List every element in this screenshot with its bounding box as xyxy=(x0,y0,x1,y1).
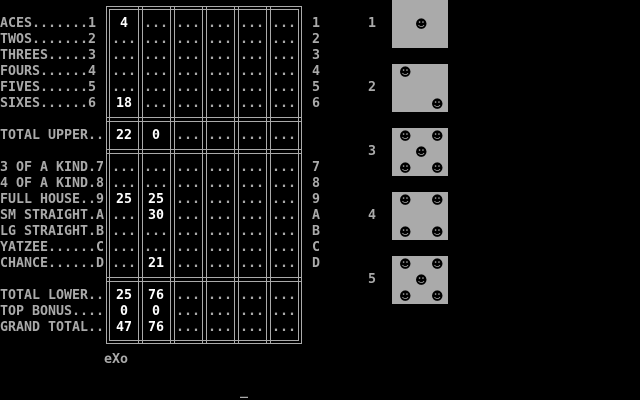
score-row-full-house: FULL HOUSE..92525............9 xyxy=(0,192,640,208)
score-cell-chance-game5: ... xyxy=(240,256,264,272)
score-cell-aces-game3: ... xyxy=(176,16,200,32)
score-cell-sixes-game1: 18 xyxy=(112,96,136,112)
score-cell-aces-game6: ... xyxy=(272,16,296,32)
score-row-key: 9 xyxy=(312,192,320,208)
score-cell-sm-straight-game2: 30 xyxy=(144,208,168,224)
score-row-key: 2 xyxy=(312,32,320,48)
score-cell-full-house-game6: ... xyxy=(272,192,296,208)
score-cell-threes-game5: ... xyxy=(240,48,264,64)
score-cell-threes-game4: ... xyxy=(208,48,232,64)
score-cell-aces-game5: ... xyxy=(240,16,264,32)
score-row-twos: TWOS.......2..................2 xyxy=(0,32,640,48)
score-cell-four-of-a-kind-game6: ... xyxy=(272,176,296,192)
die-pip-icon: ☻ xyxy=(415,144,425,160)
score-cell-total-upper-game1: 22 xyxy=(112,128,136,144)
score-cell-three-of-a-kind-game3: ... xyxy=(176,160,200,176)
score-row-label: GRAND TOTAL.. xyxy=(0,320,104,336)
score-row-key: A xyxy=(312,208,320,224)
die-2-face: ☻☻ xyxy=(392,64,448,112)
score-row-four-of-a-kind: 4 OF A KIND.8..................8 xyxy=(0,176,640,192)
score-cell-three-of-a-kind-game6: ... xyxy=(272,160,296,176)
score-cell-aces-game4: ... xyxy=(208,16,232,32)
score-row-label: YATZEE......C xyxy=(0,240,104,256)
score-cell-lg-straight-game4: ... xyxy=(208,224,232,240)
score-cell-lg-straight-game3: ... xyxy=(176,224,200,240)
score-cell-fives-game5: ... xyxy=(240,80,264,96)
table-gridline-h1 xyxy=(107,117,301,122)
die-pip-icon: ☻ xyxy=(399,64,409,80)
score-cell-top-bonus-game1: 0 xyxy=(112,304,136,320)
die-pip-icon: ☻ xyxy=(415,272,425,288)
score-cell-chance-game6: ... xyxy=(272,256,296,272)
die-label-2: 2 xyxy=(368,80,376,96)
score-row-fours: FOURS......4..................4 xyxy=(0,64,640,80)
score-row-aces: ACES.......14...............1 xyxy=(0,16,640,32)
score-cell-total-lower-game3: ... xyxy=(176,288,200,304)
score-row-label: FULL HOUSE..9 xyxy=(0,192,104,208)
score-row-key: B xyxy=(312,224,320,240)
score-row-threes: THREES.....3..................3 xyxy=(0,48,640,64)
score-row-key: 3 xyxy=(312,48,320,64)
score-row-sm-straight: SM STRAIGHT.A...30............A xyxy=(0,208,640,224)
score-cell-total-lower-game6: ... xyxy=(272,288,296,304)
score-cell-yatzee-game5: ... xyxy=(240,240,264,256)
score-row-key: 5 xyxy=(312,80,320,96)
score-cell-grand-total-game3: ... xyxy=(176,320,200,336)
score-cell-threes-game2: ... xyxy=(144,48,168,64)
table-gridline-h3 xyxy=(107,277,301,282)
score-cell-twos-game1: ... xyxy=(112,32,136,48)
score-cell-grand-total-game1: 47 xyxy=(112,320,136,336)
score-cell-sixes-game6: ... xyxy=(272,96,296,112)
score-cell-total-upper-game5: ... xyxy=(240,128,264,144)
score-cell-fours-game2: ... xyxy=(144,64,168,80)
score-cell-three-of-a-kind-game2: ... xyxy=(144,160,168,176)
score-cell-top-bonus-game4: ... xyxy=(208,304,232,320)
score-cell-full-house-game2: 25 xyxy=(144,192,168,208)
score-cell-lg-straight-game5: ... xyxy=(240,224,264,240)
die-pip-icon: ☻ xyxy=(399,256,409,272)
score-cell-yatzee-game3: ... xyxy=(176,240,200,256)
die-pip-icon: ☻ xyxy=(399,288,409,304)
score-cell-fives-game1: ... xyxy=(112,80,136,96)
score-cell-chance-game3: ... xyxy=(176,256,200,272)
table-gridline-h2 xyxy=(107,149,301,154)
score-cell-fours-game6: ... xyxy=(272,64,296,80)
score-cell-top-bonus-game6: ... xyxy=(272,304,296,320)
die-pip-icon: ☻ xyxy=(431,160,441,176)
score-row-label: ACES.......1 xyxy=(0,16,96,32)
score-cell-fives-game6: ... xyxy=(272,80,296,96)
score-cell-sixes-game5: ... xyxy=(240,96,264,112)
die-label-4: 4 xyxy=(368,208,376,224)
score-cell-fours-game4: ... xyxy=(208,64,232,80)
die-4-face: ☻☻☻☻ xyxy=(392,192,448,240)
die-pip-icon: ☻ xyxy=(431,288,441,304)
score-cell-grand-total-game4: ... xyxy=(208,320,232,336)
score-cell-three-of-a-kind-game4: ... xyxy=(208,160,232,176)
score-cell-top-bonus-game2: 0 xyxy=(144,304,168,320)
score-cell-three-of-a-kind-game5: ... xyxy=(240,160,264,176)
score-cell-four-of-a-kind-game4: ... xyxy=(208,176,232,192)
score-cell-top-bonus-game5: ... xyxy=(240,304,264,320)
score-cell-sixes-game3: ... xyxy=(176,96,200,112)
score-cell-fours-game5: ... xyxy=(240,64,264,80)
score-cell-lg-straight-game6: ... xyxy=(272,224,296,240)
score-cell-grand-total-game6: ... xyxy=(272,320,296,336)
score-row-key: 6 xyxy=(312,96,320,112)
score-cell-sm-straight-game6: ... xyxy=(272,208,296,224)
score-cell-fives-game3: ... xyxy=(176,80,200,96)
score-cell-threes-game6: ... xyxy=(272,48,296,64)
score-row-three-of-a-kind: 3 OF A KIND.7..................7 xyxy=(0,160,640,176)
score-row-label: FIVES......5 xyxy=(0,80,96,96)
score-row-label: TWOS.......2 xyxy=(0,32,96,48)
score-cell-full-house-game5: ... xyxy=(240,192,264,208)
die-1-face: ☻ xyxy=(392,0,448,48)
score-row-key: 1 xyxy=(312,16,320,32)
score-cell-fours-game3: ... xyxy=(176,64,200,80)
score-cell-lg-straight-game1: ... xyxy=(112,224,136,240)
score-cell-yatzee-game4: ... xyxy=(208,240,232,256)
score-row-fives: FIVES......5..................5 xyxy=(0,80,640,96)
prompt-input[interactable]: HOW MANY DICE TO ROLL AGAIN? _ xyxy=(8,384,264,400)
die-pip-icon: ☻ xyxy=(399,128,409,144)
score-cell-top-bonus-game3: ... xyxy=(176,304,200,320)
die-pip-icon: ☻ xyxy=(399,160,409,176)
score-cell-total-upper-game4: ... xyxy=(208,128,232,144)
die-label-1: 1 xyxy=(368,16,376,32)
score-row-label: 4 OF A KIND.8 xyxy=(0,176,104,192)
score-cell-total-upper-game6: ... xyxy=(272,128,296,144)
die-pip-icon: ☻ xyxy=(431,128,441,144)
score-cell-four-of-a-kind-game2: ... xyxy=(144,176,168,192)
score-cell-threes-game3: ... xyxy=(176,48,200,64)
score-cell-twos-game2: ... xyxy=(144,32,168,48)
score-row-label: TOP BONUS.... xyxy=(0,304,104,320)
score-cell-full-house-game1: 25 xyxy=(112,192,136,208)
die-pip-icon: ☻ xyxy=(415,16,425,32)
score-row-key: C xyxy=(312,240,320,256)
score-row-sixes: SIXES......618...............6 xyxy=(0,96,640,112)
score-cell-chance-game1: ... xyxy=(112,256,136,272)
die-pip-icon: ☻ xyxy=(399,192,409,208)
score-row-yatzee: YATZEE......C..................C xyxy=(0,240,640,256)
score-row-label: SIXES......6 xyxy=(0,96,96,112)
score-cell-threes-game1: ... xyxy=(112,48,136,64)
die-pip-icon: ☻ xyxy=(431,256,441,272)
score-cell-chance-game2: 21 xyxy=(144,256,168,272)
score-row-grand-total: GRAND TOTAL..4776............ xyxy=(0,320,640,336)
score-row-label: TOTAL UPPER.. xyxy=(0,128,104,144)
text-cursor: _ xyxy=(240,384,248,400)
die-pip-icon: ☻ xyxy=(431,96,441,112)
score-cell-twos-game6: ... xyxy=(272,32,296,48)
score-row-label: CHANCE......D xyxy=(0,256,104,272)
score-cell-total-upper-game2: 0 xyxy=(144,128,168,144)
score-cell-fives-game2: ... xyxy=(144,80,168,96)
score-row-key: D xyxy=(312,256,320,272)
score-cell-total-lower-game5: ... xyxy=(240,288,264,304)
score-cell-twos-game5: ... xyxy=(240,32,264,48)
score-row-key: 4 xyxy=(312,64,320,80)
die-pip-icon: ☻ xyxy=(431,224,441,240)
score-cell-aces-game2: ... xyxy=(144,16,168,32)
exo-tag: eXo xyxy=(104,352,128,368)
score-cell-fives-game4: ... xyxy=(208,80,232,96)
score-cell-fours-game1: ... xyxy=(112,64,136,80)
score-cell-yatzee-game1: ... xyxy=(112,240,136,256)
score-cell-sm-straight-game1: ... xyxy=(112,208,136,224)
score-cell-full-house-game4: ... xyxy=(208,192,232,208)
score-cell-total-lower-game2: 76 xyxy=(144,288,168,304)
score-cell-sm-straight-game5: ... xyxy=(240,208,264,224)
score-cell-grand-total-game5: ... xyxy=(240,320,264,336)
score-row-key: 7 xyxy=(312,160,320,176)
score-cell-sm-straight-game4: ... xyxy=(208,208,232,224)
score-row-label: TOTAL LOWER.. xyxy=(0,288,104,304)
score-cell-total-lower-game4: ... xyxy=(208,288,232,304)
score-cell-aces-game1: 4 xyxy=(112,16,136,32)
score-cell-four-of-a-kind-game3: ... xyxy=(176,176,200,192)
yatzee-game-screen: ACES.......14...............1TWOS.......… xyxy=(0,0,640,400)
score-row-label: FOURS......4 xyxy=(0,64,96,80)
score-cell-four-of-a-kind-game1: ... xyxy=(112,176,136,192)
score-cell-yatzee-game2: ... xyxy=(144,240,168,256)
score-cell-grand-total-game2: 76 xyxy=(144,320,168,336)
score-cell-sixes-game2: ... xyxy=(144,96,168,112)
score-cell-sixes-game4: ... xyxy=(208,96,232,112)
die-5-face: ☻☻☻☻☻ xyxy=(392,256,448,304)
score-row-lg-straight: LG STRAIGHT.B..................B xyxy=(0,224,640,240)
score-cell-total-lower-game1: 25 xyxy=(112,288,136,304)
score-cell-yatzee-game6: ... xyxy=(272,240,296,256)
die-label-5: 5 xyxy=(368,272,376,288)
score-row-top-bonus: TOP BONUS....00............ xyxy=(0,304,640,320)
die-3-face: ☻☻☻☻☻ xyxy=(392,128,448,176)
score-row-total-upper: TOTAL UPPER..220............ xyxy=(0,128,640,144)
score-row-label: 3 OF A KIND.7 xyxy=(0,160,104,176)
score-row-total-lower: TOTAL LOWER..2576............ xyxy=(0,288,640,304)
score-cell-full-house-game3: ... xyxy=(176,192,200,208)
score-cell-total-upper-game3: ... xyxy=(176,128,200,144)
score-row-label: THREES.....3 xyxy=(0,48,96,64)
die-pip-icon: ☻ xyxy=(399,224,409,240)
score-cell-twos-game4: ... xyxy=(208,32,232,48)
score-row-key: 8 xyxy=(312,176,320,192)
score-cell-four-of-a-kind-game5: ... xyxy=(240,176,264,192)
score-row-label: SM STRAIGHT.A xyxy=(0,208,104,224)
score-cell-chance-game4: ... xyxy=(208,256,232,272)
score-row-label: LG STRAIGHT.B xyxy=(0,224,104,240)
die-pip-icon: ☻ xyxy=(431,192,441,208)
die-label-3: 3 xyxy=(368,144,376,160)
score-cell-twos-game3: ... xyxy=(176,32,200,48)
score-cell-sm-straight-game3: ... xyxy=(176,208,200,224)
score-cell-lg-straight-game2: ... xyxy=(144,224,168,240)
score-cell-three-of-a-kind-game1: ... xyxy=(112,160,136,176)
score-row-chance: CHANCE......D...21............D xyxy=(0,256,640,272)
